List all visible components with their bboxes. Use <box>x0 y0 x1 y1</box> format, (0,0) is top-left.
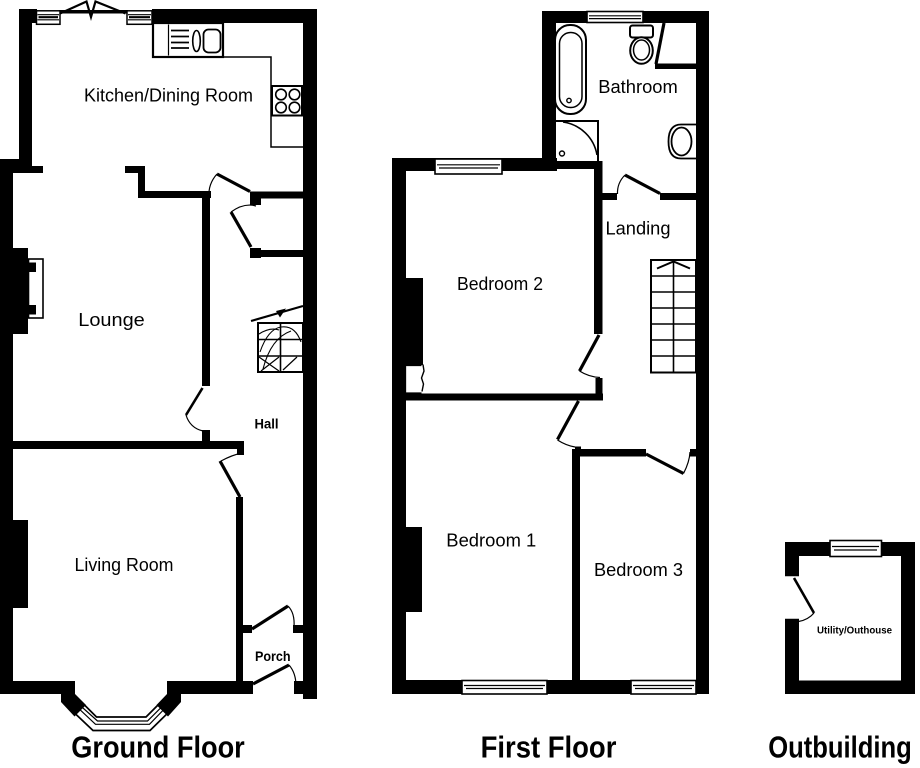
svg-text:Porch: Porch <box>255 648 291 664</box>
svg-text:Utility/Outhouse: Utility/Outhouse <box>817 625 892 637</box>
svg-text:Lounge: Lounge <box>78 310 145 330</box>
svg-text:Ground Floor: Ground Floor <box>71 730 245 765</box>
svg-text:Living Room: Living Room <box>75 555 174 575</box>
svg-text:Bedroom 2: Bedroom 2 <box>457 274 543 294</box>
svg-text:Bedroom 1: Bedroom 1 <box>446 531 536 551</box>
svg-text:Hall: Hall <box>255 416 279 432</box>
svg-text:Outbuilding: Outbuilding <box>768 730 912 765</box>
svg-text:First Floor: First Floor <box>481 730 617 765</box>
svg-text:Kitchen/Dining Room: Kitchen/Dining Room <box>84 86 253 106</box>
svg-text:Bedroom 3: Bedroom 3 <box>594 560 683 580</box>
svg-text:Landing: Landing <box>606 219 671 239</box>
svg-text:Bathroom: Bathroom <box>598 77 678 97</box>
